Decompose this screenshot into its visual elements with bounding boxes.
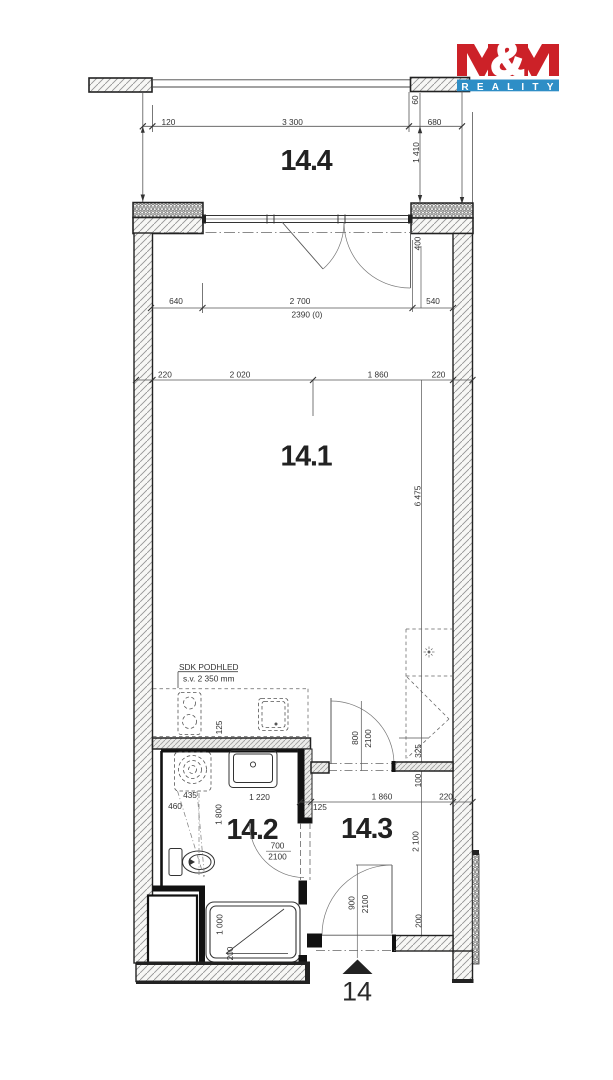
svg-text:325: 325 (413, 744, 423, 758)
svg-text:100: 100 (413, 773, 423, 787)
svg-text:14.3: 14.3 (341, 813, 392, 845)
svg-text:680: 680 (428, 117, 442, 127)
svg-text:220: 220 (432, 370, 446, 380)
svg-text:REALITY: REALITY (461, 82, 561, 93)
svg-text:2390 (0): 2390 (0) (292, 310, 323, 320)
svg-text:2 020: 2 020 (230, 370, 251, 380)
svg-text:14: 14 (342, 977, 372, 1007)
svg-text:1 000: 1 000 (215, 914, 225, 935)
svg-text:435: 435 (183, 790, 197, 800)
svg-text:400: 400 (413, 236, 423, 250)
svg-text:14.4: 14.4 (280, 145, 332, 177)
svg-text:14.1: 14.1 (280, 441, 332, 473)
svg-text:640: 640 (169, 296, 183, 306)
svg-text:1 860: 1 860 (372, 792, 393, 802)
svg-text:2 700: 2 700 (290, 296, 311, 306)
svg-text:800: 800 (350, 731, 360, 745)
svg-text:460: 460 (168, 801, 182, 811)
svg-text:1 220: 1 220 (249, 792, 270, 802)
svg-text:1 800: 1 800 (214, 804, 224, 825)
svg-text:1 410: 1 410 (411, 142, 421, 163)
svg-text:1 860: 1 860 (368, 370, 389, 380)
svg-text:SDK PODHLED: SDK PODHLED (179, 662, 238, 672)
svg-text:6 475: 6 475 (412, 485, 422, 506)
svg-text:125: 125 (313, 802, 327, 812)
svg-text:120: 120 (162, 117, 176, 127)
svg-text:2100: 2100 (268, 852, 287, 862)
svg-text:60: 60 (410, 95, 420, 105)
svg-text:220: 220 (439, 792, 453, 802)
svg-text:700: 700 (271, 841, 285, 851)
svg-text:200: 200 (225, 946, 235, 960)
svg-text:s.v. 2 350 mm: s.v. 2 350 mm (183, 674, 235, 684)
svg-text:2100: 2100 (360, 894, 370, 913)
svg-text:200: 200 (414, 914, 424, 928)
svg-text:900: 900 (347, 896, 357, 910)
svg-text:2100: 2100 (363, 729, 373, 748)
svg-text:2 100: 2 100 (411, 831, 421, 852)
svg-text:125: 125 (214, 720, 224, 734)
svg-text:3 300: 3 300 (282, 117, 303, 127)
svg-text:540: 540 (426, 296, 440, 306)
svg-text:220: 220 (158, 370, 172, 380)
svg-text:&: & (491, 33, 525, 86)
